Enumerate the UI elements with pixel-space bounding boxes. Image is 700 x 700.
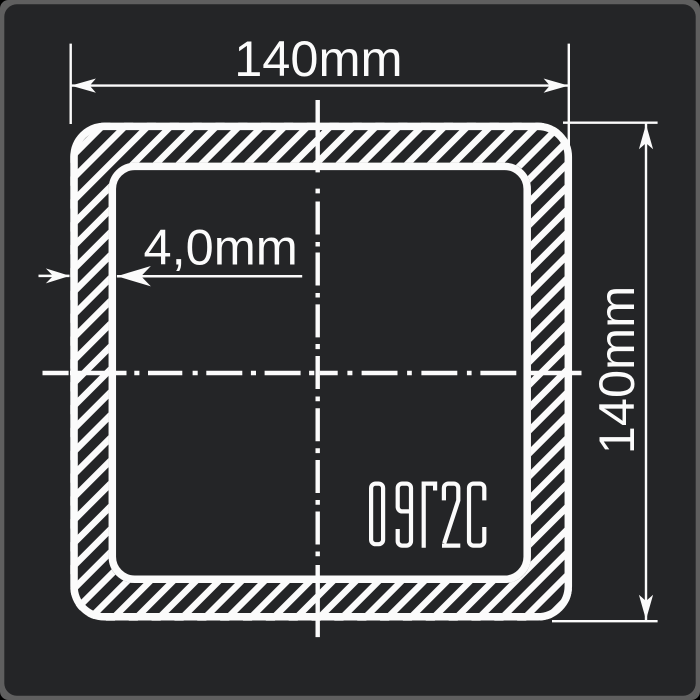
svg-text:140mm: 140mm	[234, 30, 402, 87]
svg-text:4,0mm: 4,0mm	[144, 218, 298, 275]
svg-text:140mm: 140mm	[588, 286, 645, 454]
